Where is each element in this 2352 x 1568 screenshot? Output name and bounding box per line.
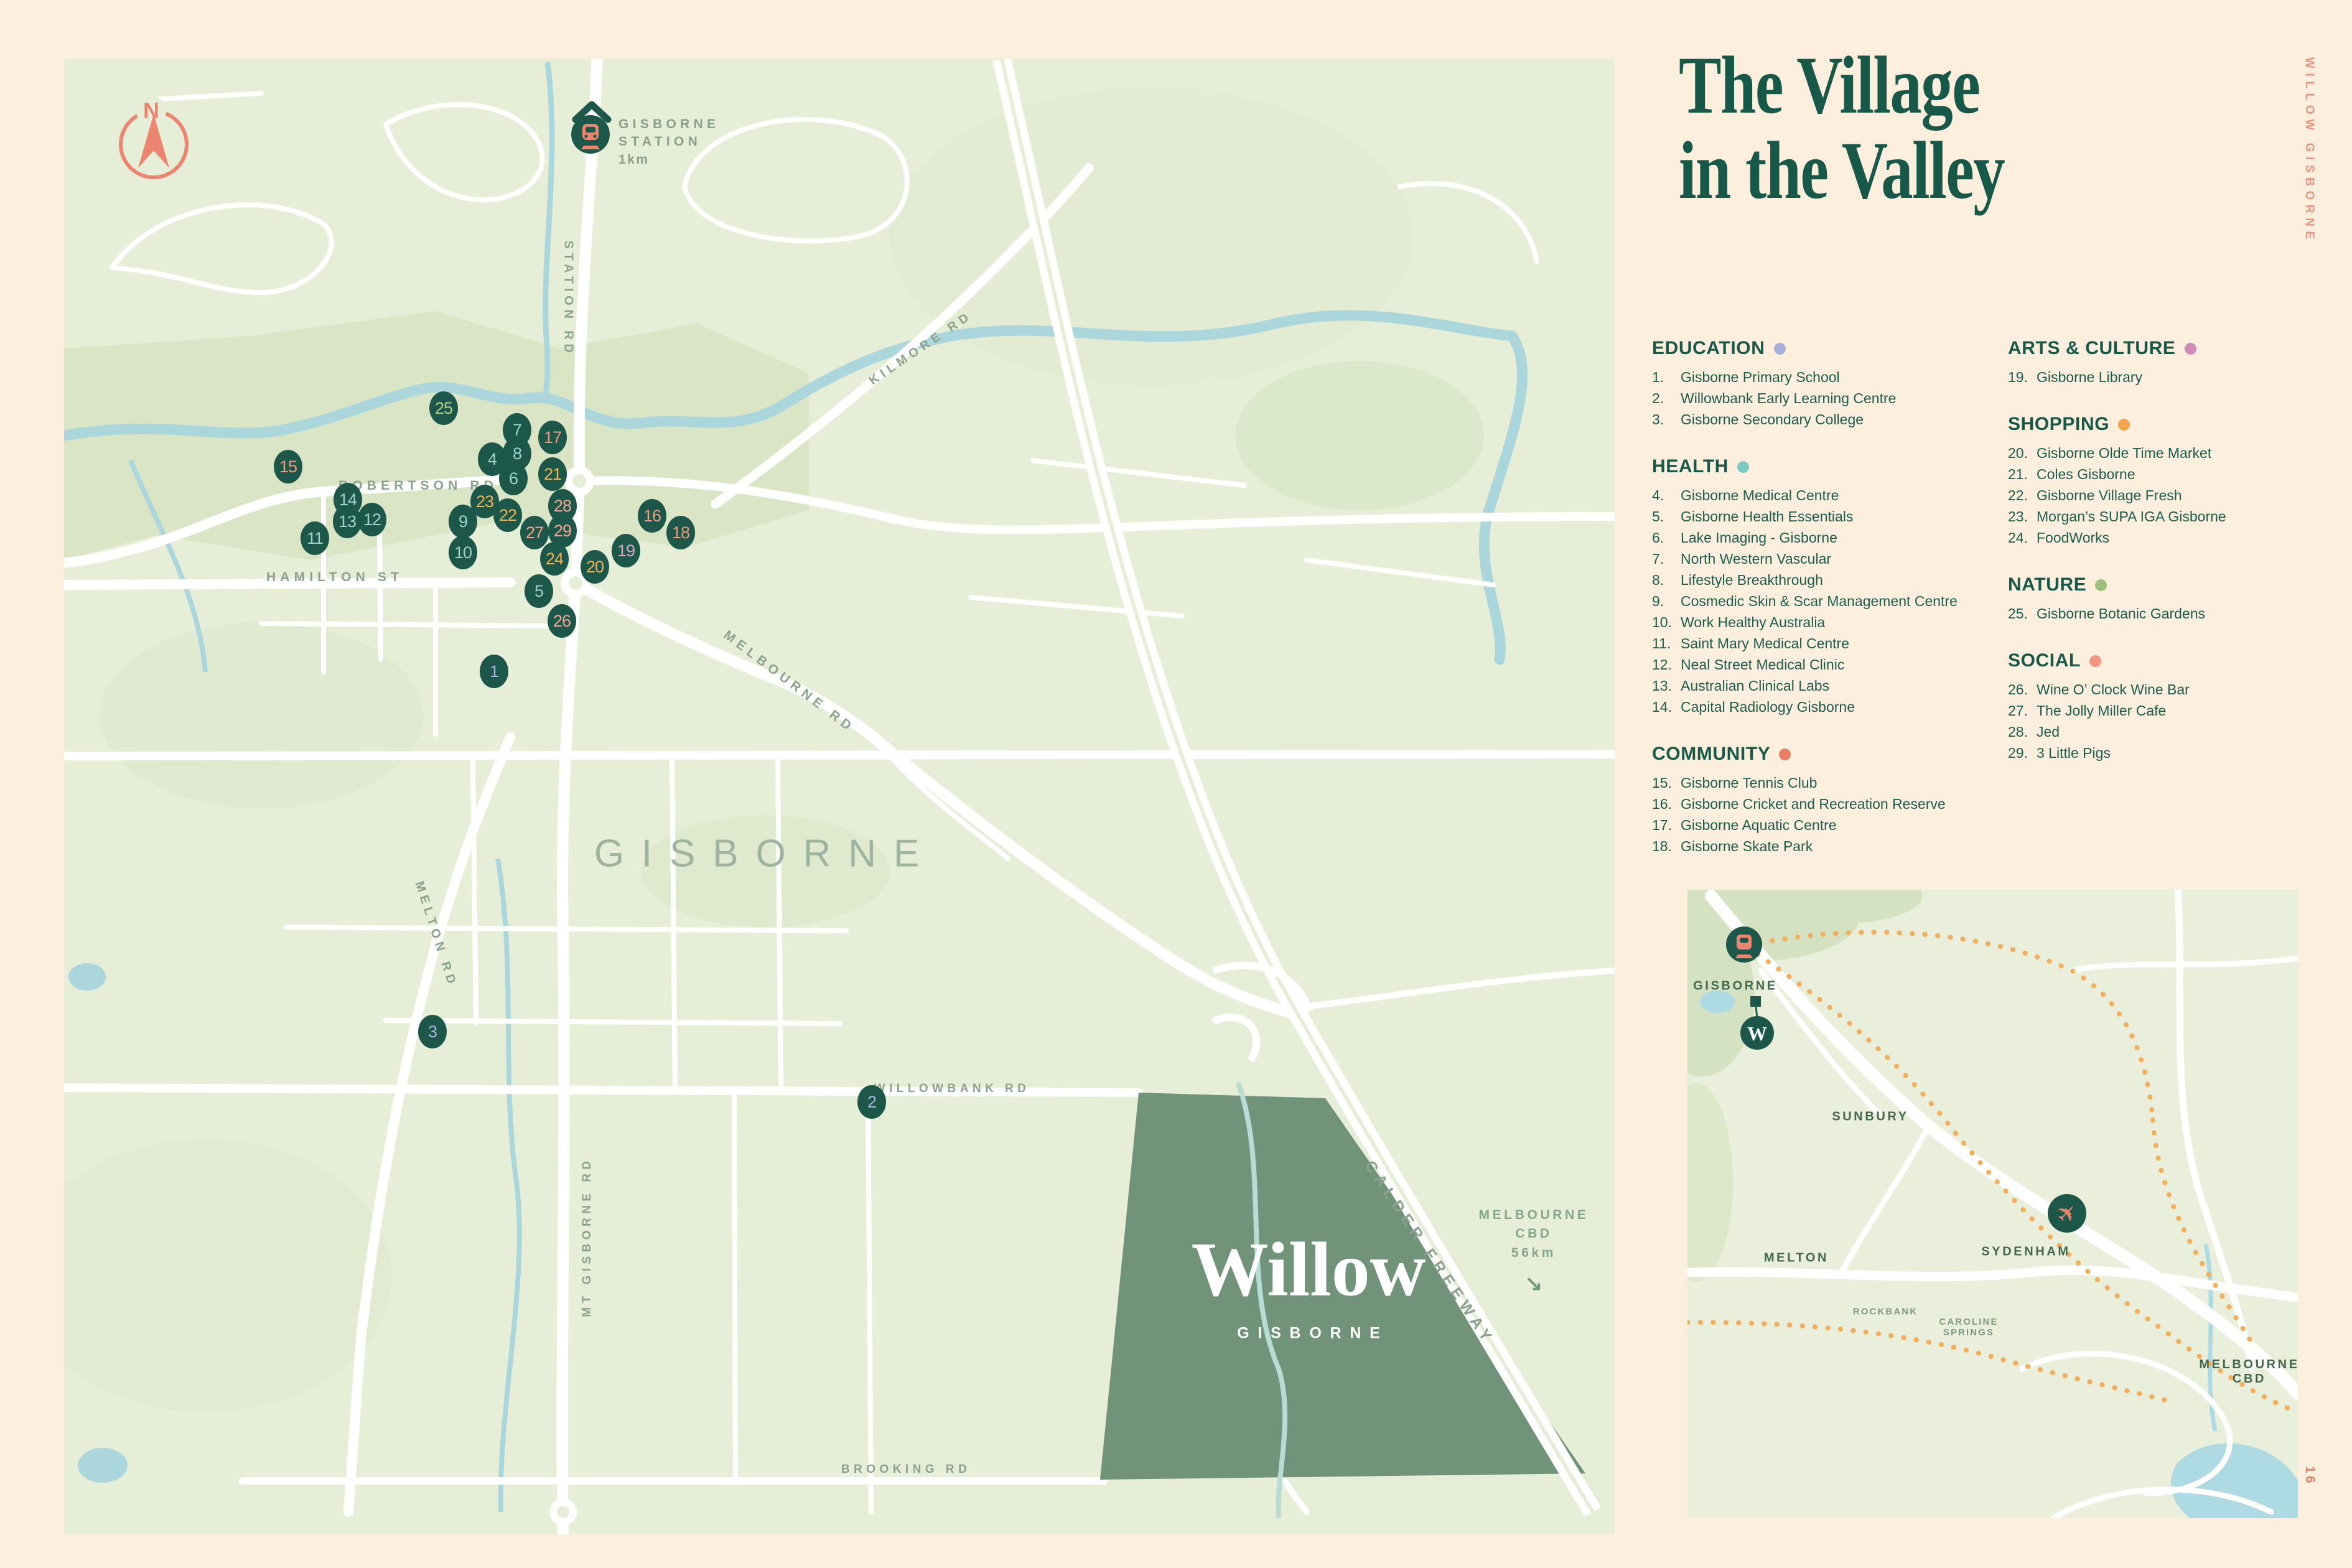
willow-logo-name: Willow	[1192, 1231, 1426, 1309]
poi-marker-5: 5	[525, 574, 553, 608]
compass-n-label: N	[143, 98, 159, 123]
inset-label-melbourne-cbd: MELBOURNE CBD	[2199, 1358, 2299, 1386]
legend-item-label: Cosmedic Skin & Scar Management Centre	[1681, 590, 1958, 612]
legend-item: 19.Gisborne Library	[2008, 366, 2344, 388]
legend-item-label: Gisborne Olde Time Market	[2037, 442, 2211, 464]
legend-item: 24.FoodWorks	[2008, 527, 2344, 548]
legend-item: 29.3 Little Pigs	[2008, 742, 2344, 763]
side-brand-label: WILLOW GISBORNE	[2302, 57, 2316, 244]
legend-item-number: 13.	[1652, 675, 1681, 696]
legend-section-social: SOCIAL26.Wine O’ Clock Wine Bar27.The Jo…	[2008, 650, 2344, 763]
legend-item-label: Saint Mary Medical Centre	[1681, 633, 1849, 654]
legend-heading-label: COMMUNITY	[1652, 744, 1770, 765]
legend-item-label: Lifestyle Breakthrough	[1681, 569, 1823, 590]
legend-item-label: Coles Gisborne	[2037, 464, 2135, 485]
town-label-gisborne: GISBORNE	[594, 832, 937, 876]
legend-item-number: 21.	[2008, 464, 2037, 485]
legend-item: 5.Gisborne Health Essentials	[1652, 506, 1988, 527]
legend-item-label: The Jolly Miller Cafe	[2037, 700, 2166, 721]
legend-item: 16.Gisborne Cricket and Recreation Reser…	[1652, 793, 1988, 814]
legend-item-label: Gisborne Library	[2037, 366, 2142, 388]
legend-item-number: 11.	[1652, 633, 1681, 654]
road-label-station-rd: STATION RD	[561, 240, 576, 357]
poi-marker-17: 17	[538, 421, 567, 454]
page-number: 16	[2302, 1466, 2317, 1486]
title-line-2: in the Valley	[1679, 128, 2004, 213]
poi-marker-number: 19	[617, 541, 635, 561]
page-title: The Village in the Valley	[1679, 42, 2004, 213]
legend-item-number: 1.	[1652, 366, 1681, 388]
poi-marker-25: 25	[429, 391, 458, 425]
legend-item: 22.Gisborne Village Fresh	[2008, 485, 2344, 506]
legend-item: 20.Gisborne Olde Time Market	[2008, 442, 2344, 464]
poi-marker-number: 6	[509, 469, 518, 488]
legend-item-label: 3 Little Pigs	[2037, 742, 2111, 763]
legend-item-number: 28.	[2008, 721, 2037, 742]
willow-logo-sub: GISBORNE	[1192, 1325, 1426, 1343]
legend-item-label: Gisborne Primary School	[1681, 366, 1840, 388]
legend-item: 3.Gisborne Secondary College	[1652, 409, 1988, 430]
legend-item-label: Wine O’ Clock Wine Bar	[2037, 679, 2190, 700]
road-label-brooking-rd: BROOKING RD	[841, 1463, 971, 1477]
legend-item: 21.Coles Gisborne	[2008, 464, 2344, 485]
poi-marker-number: 21	[544, 465, 561, 484]
station-label: GISBORNE STATION 1km	[618, 116, 719, 169]
legend-item-number: 12.	[1652, 654, 1681, 675]
legend-item-number: 25.	[2008, 603, 2037, 624]
legend-item-number: 2.	[1652, 388, 1681, 409]
legend-heading-label: SOCIAL	[2008, 650, 2081, 671]
poi-marker-1: 1	[480, 655, 508, 688]
legend-item-number: 14.	[1652, 696, 1681, 717]
inset-label-sydenham: SYDENHAM	[1981, 1245, 2070, 1259]
station-label-line3: 1km	[618, 151, 719, 169]
legend-item: 12.Neal Street Medical Clinic	[1652, 654, 1988, 675]
legend-heading: EDUCATION	[1652, 338, 1988, 359]
poi-marker-number: 16	[643, 506, 661, 526]
poi-marker-number: 15	[279, 457, 297, 477]
poi-marker-number: 10	[454, 543, 472, 562]
poi-marker-11: 11	[301, 521, 329, 555]
legend-item-number: 29.	[2008, 742, 2037, 763]
legend-section-health: HEALTH4.Gisborne Medical Centre5.Gisborn…	[1652, 456, 1988, 717]
poi-marker-number: 18	[672, 523, 689, 543]
category-dot-icon	[1737, 461, 1749, 473]
legend-item-label: Jed	[2037, 721, 2060, 742]
legend-item-label: Gisborne Botanic Gardens	[2037, 603, 2205, 624]
legend-item-label: Gisborne Medical Centre	[1681, 485, 1839, 506]
legend-item: 15.Gisborne Tennis Club	[1652, 772, 1988, 793]
legend-item-label: North Western Vascular	[1681, 548, 1831, 569]
legend-item-label: Capital Radiology Gisborne	[1681, 696, 1855, 717]
road-label-willowbank-rd: WILLOWBANK RD	[874, 1082, 1030, 1096]
legend-item: 9.Cosmedic Skin & Scar Management Centre	[1652, 590, 1988, 612]
legend-item-number: 27.	[2008, 700, 2037, 721]
legend-item: 18.Gisborne Skate Park	[1652, 836, 1988, 857]
legend-item-number: 15.	[1652, 772, 1681, 793]
poi-marker-19: 19	[612, 534, 640, 567]
poi-marker-8: 8	[503, 437, 531, 470]
category-dot-icon	[2089, 655, 2101, 667]
poi-marker-number: 25	[435, 399, 452, 418]
legend-item: 17.Gisborne Aquatic Centre	[1652, 814, 1988, 836]
legend-item-label: Lake Imaging - Gisborne	[1681, 527, 1837, 548]
legend-heading-label: ARTS & CULTURE	[2008, 338, 2176, 359]
legend-heading: COMMUNITY	[1652, 744, 1988, 765]
brochure-page: N	[0, 0, 2352, 1568]
legend-item: 10.Work Healthy Australia	[1652, 612, 1988, 633]
inset-label-melton: MELTON	[1764, 1251, 1829, 1266]
poi-marker-3: 3	[418, 1015, 447, 1048]
title-line-1: The Village	[1679, 42, 2004, 128]
poi-marker-number: 24	[546, 549, 563, 569]
legend-section-arts: ARTS & CULTURE19.Gisborne Library	[2008, 338, 2344, 388]
map-artwork: N	[0, 0, 2352, 1568]
inset-label-gisborne: GISBORNE	[1693, 979, 1777, 994]
legend-item: 25.Gisborne Botanic Gardens	[2008, 603, 2344, 624]
legend-item-number: 17.	[1652, 814, 1681, 836]
legend-item-number: 6.	[1652, 527, 1681, 548]
category-dot-icon	[2095, 579, 2107, 591]
cbd-line1: MELBOURNE	[1479, 1206, 1589, 1225]
legend-item-label: Gisborne Tennis Club	[1681, 772, 1817, 793]
legend-heading: ARTS & CULTURE	[2008, 338, 2344, 359]
poi-marker-number: 14	[339, 490, 357, 510]
poi-marker-number: 23	[476, 492, 493, 511]
legend-item: 23.Morgan’s SUPA IGA Gisborne	[2008, 506, 2344, 527]
legend-item-label: FoodWorks	[2037, 527, 2109, 548]
legend-item-number: 18.	[1652, 836, 1681, 857]
inset-w-badge-letter: W	[1747, 1022, 1767, 1045]
legend-item-label: Gisborne Health Essentials	[1681, 506, 1853, 527]
legend-section-nature: NATURE25.Gisborne Botanic Gardens	[2008, 574, 2344, 624]
legend-heading: NATURE	[2008, 574, 2344, 595]
legend-item-label: Work Healthy Australia	[1681, 612, 1825, 633]
legend-item: 28.Jed	[2008, 721, 2344, 742]
legend-item-label: Neal Street Medical Clinic	[1681, 654, 1844, 675]
category-dot-icon	[2185, 343, 2196, 355]
poi-marker-number: 29	[554, 521, 571, 541]
poi-marker-number: 12	[363, 510, 381, 530]
poi-marker-number: 26	[553, 612, 571, 631]
legend-item-number: 5.	[1652, 506, 1681, 527]
legend-item: 13.Australian Clinical Labs	[1652, 675, 1988, 696]
inset-train-icon	[1726, 926, 1762, 963]
legend-item: 6.Lake Imaging - Gisborne	[1652, 527, 1988, 548]
legend-item-number: 19.	[2008, 366, 2037, 388]
station-label-line2: STATION	[618, 133, 719, 151]
poi-marker-number: 2	[867, 1093, 876, 1112]
legend-heading: SOCIAL	[2008, 650, 2344, 671]
category-dot-icon	[2118, 419, 2130, 431]
road-label-hamilton-st: HAMILTON ST	[266, 570, 403, 585]
legend-heading-label: EDUCATION	[1652, 338, 1765, 359]
legend-item: 8.Lifestyle Breakthrough	[1652, 569, 1988, 590]
legend-item-number: 9.	[1652, 590, 1681, 612]
poi-marker-27: 27	[520, 516, 549, 549]
legend-item-number: 23.	[2008, 506, 2037, 527]
legend-item-number: 16.	[1652, 793, 1681, 814]
legend-heading-label: HEALTH	[1652, 456, 1729, 477]
legend-item-label: Morgan’s SUPA IGA Gisborne	[2037, 506, 2226, 527]
poi-marker-26: 26	[548, 604, 576, 638]
poi-marker-number: 17	[544, 428, 561, 447]
legend-item-number: 20.	[2008, 442, 2037, 464]
poi-marker-number: 9	[459, 512, 467, 531]
legend-item-label: Australian Clinical Labs	[1681, 675, 1829, 696]
legend-item-number: 10.	[1652, 612, 1681, 633]
legend-heading: HEALTH	[1652, 456, 1988, 477]
legend-item-number: 26.	[2008, 679, 2037, 700]
legend-item-label: Gisborne Secondary College	[1681, 409, 1864, 430]
poi-marker-12: 12	[358, 503, 386, 536]
poi-marker-16: 16	[638, 499, 666, 533]
poi-marker-10: 10	[449, 536, 477, 569]
legend-item-number: 7.	[1652, 548, 1681, 569]
legend-section-education: EDUCATION1.Gisborne Primary School2.Will…	[1652, 338, 1988, 430]
legend-item: 2.Willowbank Early Learning Centre	[1652, 388, 1988, 409]
poi-marker-2: 2	[857, 1085, 886, 1119]
poi-marker-number: 27	[526, 523, 543, 543]
legend-heading-label: NATURE	[2008, 574, 2086, 595]
legend-item: 1.Gisborne Primary School	[1652, 366, 1988, 388]
poi-marker-number: 3	[428, 1022, 437, 1042]
legend-item-label: Willowbank Early Learning Centre	[1681, 388, 1896, 409]
poi-marker-14: 14	[334, 483, 362, 516]
poi-marker-number: 8	[513, 444, 521, 464]
legend-column: ARTS & CULTURE19.Gisborne LibrarySHOPPIN…	[2008, 338, 2344, 790]
legend-item: 11.Saint Mary Medical Centre	[1652, 633, 1988, 654]
poi-marker-number: 5	[534, 582, 543, 601]
cbd-line3: 56km	[1479, 1244, 1589, 1262]
poi-marker-number: 28	[554, 497, 571, 516]
legend-item: 7.North Western Vascular	[1652, 548, 1988, 569]
poi-marker-20: 20	[581, 550, 609, 584]
poi-marker-number: 22	[499, 506, 516, 525]
legend-item-number: 24.	[2008, 527, 2037, 548]
legend-item-label: Gisborne Village Fresh	[2037, 485, 2182, 506]
cbd-arrow-icon: ↘	[1479, 1269, 1589, 1299]
poi-marker-number: 11	[307, 529, 323, 548]
legend-item: 26.Wine O’ Clock Wine Bar	[2008, 679, 2344, 700]
station-label-line1: GISBORNE	[618, 116, 719, 133]
poi-marker-number: 1	[490, 662, 498, 681]
poi-marker-15: 15	[274, 450, 302, 483]
inset-label-sunbury: SUNBURY	[1832, 1110, 1908, 1124]
legend-item-label: Gisborne Skate Park	[1681, 836, 1813, 857]
road-label-mt-gisborne-rd: MT GISBORNE RD	[581, 1157, 594, 1317]
legend-item: 4.Gisborne Medical Centre	[1652, 485, 1988, 506]
legend-item-number: 8.	[1652, 569, 1681, 590]
inset-map-canvas: W ✈	[1649, 868, 2298, 1518]
legend-item: 27.The Jolly Miller Cafe	[2008, 700, 2344, 721]
legend-item-number: 3.	[1652, 409, 1681, 430]
inset-label-caroline-springs: CAROLINE SPRINGS	[1939, 1317, 1998, 1338]
poi-marker-18: 18	[666, 516, 695, 549]
melbourne-cbd-direction: MELBOURNE CBD 56km ↘	[1479, 1206, 1589, 1300]
inset-site-square	[1750, 996, 1761, 1007]
poi-marker-29: 29	[548, 514, 577, 548]
legend-item-number: 4.	[1652, 485, 1681, 506]
legend-section-shopping: SHOPPING20.Gisborne Olde Time Market21.C…	[2008, 414, 2344, 548]
poi-marker-21: 21	[538, 457, 567, 491]
category-dot-icon	[1779, 749, 1791, 760]
cbd-line2: CBD	[1479, 1225, 1589, 1243]
willow-site-logo: Willow GISBORNE	[1192, 1231, 1426, 1343]
legend-heading-label: SHOPPING	[2008, 414, 2109, 435]
legend-item-label: Gisborne Cricket and Recreation Reserve	[1681, 793, 1946, 814]
poi-marker-number: 20	[586, 558, 604, 577]
legend-item: 14.Capital Radiology Gisborne	[1652, 696, 1988, 717]
poi-marker-23: 23	[470, 485, 499, 518]
legend-item-label: Gisborne Aquatic Centre	[1681, 814, 1837, 836]
inset-label-rockbank: ROCKBANK	[1853, 1307, 1918, 1317]
legend-section-community: COMMUNITY15.Gisborne Tennis Club16.Gisbo…	[1652, 744, 1988, 857]
category-dot-icon	[1774, 343, 1786, 355]
legend-column: EDUCATION1.Gisborne Primary School2.Will…	[1652, 338, 1988, 883]
legend-item-number: 22.	[2008, 485, 2037, 506]
legend-heading: SHOPPING	[2008, 414, 2344, 435]
poi-marker-number: 4	[488, 450, 497, 469]
